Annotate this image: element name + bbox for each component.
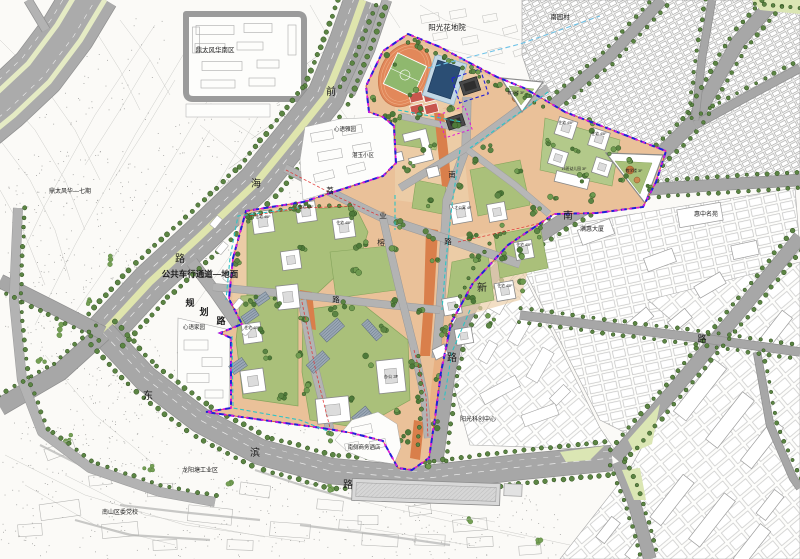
svg-text:住宅 45F: 住宅 45F: [516, 242, 532, 247]
svg-text:满惠大厦: 满惠大厦: [580, 225, 604, 233]
svg-text:公共车行通道—地面: 公共车行通道—地面: [162, 269, 239, 279]
svg-text:住宅 45F: 住宅 45F: [591, 131, 607, 136]
svg-text:16班幼儿园 3F: 16班幼儿园 3F: [562, 166, 588, 171]
svg-text:教学楼 3F: 教学楼 3F: [508, 90, 526, 95]
svg-text:住宅 45F: 住宅 45F: [558, 120, 574, 125]
svg-text:人才公寓 4F: 人才公寓 4F: [451, 205, 472, 210]
svg-text:路: 路: [447, 351, 457, 364]
svg-text:住宅 45F: 住宅 45F: [298, 204, 314, 209]
svg-text:新: 新: [477, 281, 487, 294]
svg-text:路: 路: [175, 252, 185, 265]
svg-text:路: 路: [216, 315, 226, 326]
svg-text:东: 东: [143, 389, 153, 402]
svg-text:南: 南: [563, 209, 573, 222]
svg-text:前: 前: [326, 85, 336, 98]
svg-text:阳光花地院: 阳光花地院: [428, 22, 466, 32]
svg-text:海: 海: [251, 177, 261, 190]
svg-text:鼎太风华南区: 鼎太风华南区: [196, 45, 236, 54]
svg-text:南: 南: [448, 169, 456, 179]
svg-text:湛玉小区: 湛玉小区: [352, 151, 375, 159]
svg-text:龙阳塘工业区: 龙阳塘工业区: [182, 466, 218, 474]
svg-text:鼎太风华—七期: 鼎太风华—七期: [49, 187, 91, 195]
svg-text:心语家园: 心语家园: [183, 323, 206, 331]
svg-text:住宅 45F: 住宅 45F: [336, 220, 352, 225]
svg-text:划: 划: [199, 306, 208, 317]
svg-text:荔: 荔: [326, 185, 334, 195]
svg-text:办公 3F: 办公 3F: [384, 373, 399, 380]
svg-text:业: 业: [379, 210, 387, 220]
svg-text:南园村: 南园村: [550, 12, 570, 21]
svg-text:路: 路: [444, 236, 452, 246]
svg-text:教学楼 3F: 教学楼 3F: [626, 168, 644, 173]
svg-text:住宅 40F: 住宅 40F: [244, 325, 260, 330]
svg-text:路: 路: [332, 294, 340, 304]
svg-text:南山区委党校: 南山区委党校: [102, 508, 138, 516]
svg-text:路: 路: [697, 333, 706, 344]
svg-text:住宅 45F: 住宅 45F: [255, 214, 271, 219]
svg-text:心语雅园: 心语雅园: [334, 125, 357, 133]
svg-text:惠中名苑: 惠中名苑: [694, 210, 718, 218]
svg-text:南侧商务酒店: 南侧商务酒店: [347, 443, 381, 451]
svg-text:阳光科创中心: 阳光科创中心: [460, 415, 496, 423]
svg-text:路: 路: [343, 478, 353, 491]
svg-text:滨: 滨: [250, 446, 260, 459]
svg-text:规: 规: [185, 297, 194, 308]
svg-text:榕: 榕: [377, 237, 385, 247]
svg-text:住宅 45F: 住宅 45F: [497, 283, 513, 288]
